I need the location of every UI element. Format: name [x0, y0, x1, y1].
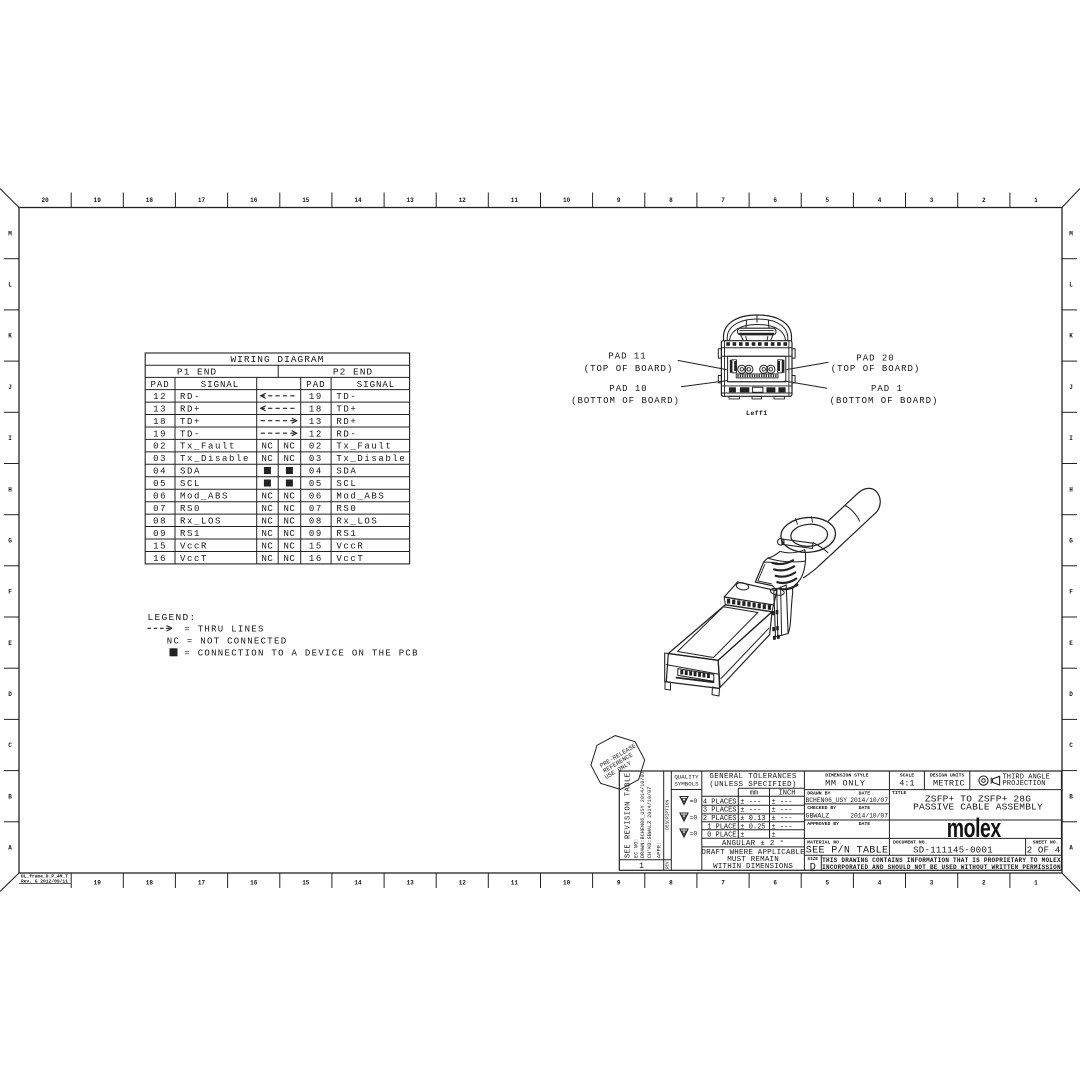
svg-text:7: 7 — [721, 880, 725, 887]
svg-text:I: I — [1069, 435, 1073, 442]
svg-text:12: 12 — [309, 429, 323, 439]
svg-text:8: 8 — [669, 197, 673, 204]
svg-text:B: B — [1069, 793, 1073, 800]
svg-text:± ---: ± --- — [772, 807, 793, 815]
svg-text:± ---: ± --- — [772, 815, 793, 823]
svg-text:M: M — [1069, 230, 1073, 237]
svg-text:APPROVED BY: APPROVED BY — [807, 821, 839, 827]
svg-text:06: 06 — [309, 492, 323, 502]
svg-text:E: E — [1069, 640, 1073, 647]
svg-text:± ---: ± --- — [740, 798, 761, 806]
svg-text:3: 3 — [930, 880, 934, 887]
svg-text:09: 09 — [153, 529, 167, 539]
svg-text:NC: NC — [261, 554, 273, 564]
svg-text:2014/10/07: 2014/10/07 — [850, 813, 888, 820]
svg-text:VccR: VccR — [180, 541, 208, 551]
svg-text:DOCUMENT NO.: DOCUMENT NO. — [893, 839, 928, 845]
svg-text:Rx_LOS: Rx_LOS — [180, 516, 222, 526]
svg-text:Tx_Disable: Tx_Disable — [336, 454, 406, 464]
svg-text:E: E — [8, 640, 12, 647]
svg-text:SEE P/N TABLE: SEE P/N TABLE — [806, 845, 889, 857]
svg-text:J: J — [8, 384, 12, 391]
svg-text:SCL: SCL — [336, 479, 357, 489]
svg-text:16: 16 — [250, 197, 258, 204]
svg-text:G: G — [8, 538, 12, 545]
svg-text:13: 13 — [406, 880, 414, 887]
svg-text:DRAWN:BCHEN06_USY 2014/10/07: DRAWN:BCHEN06_USY 2014/10/07 — [640, 771, 646, 858]
svg-text:RD-: RD- — [336, 429, 357, 439]
svg-text:Tx_Fault: Tx_Fault — [180, 442, 236, 452]
svg-text:1 PLACE: 1 PLACE — [707, 823, 736, 831]
svg-text:PAD 1: PAD 1 — [871, 384, 903, 394]
svg-text:(BOTTOM OF BOARD): (BOTTOM OF BOARD) — [571, 396, 680, 406]
svg-text:02: 02 — [153, 442, 167, 452]
svg-text:= CONNECTION TO A DEVICE ON TH: = CONNECTION TO A DEVICE ON THE PCB — [184, 649, 419, 659]
svg-text:NC: NC — [261, 504, 273, 514]
svg-text:11: 11 — [511, 197, 519, 204]
svg-text:10: 10 — [563, 197, 571, 204]
svg-text:A: A — [8, 845, 12, 852]
svg-text:REV: REV — [667, 861, 671, 869]
svg-text:16: 16 — [250, 880, 258, 887]
svg-text:WITHIN DIMENSIONS: WITHIN DIMENSIONS — [713, 863, 793, 871]
svg-text:INCORPORATED AND SHOULD NOT BE: INCORPORATED AND SHOULD NOT BE USED WITH… — [822, 864, 1061, 871]
svg-text:METRIC: METRIC — [933, 778, 965, 788]
svg-text:Mod_ABS: Mod_ABS — [180, 492, 229, 502]
svg-text:07: 07 — [153, 504, 167, 514]
svg-text:DATE: DATE — [859, 805, 871, 811]
svg-text:(BOTTOM OF BOARD): (BOTTOM OF BOARD) — [830, 396, 939, 406]
svg-text:4: 4 — [878, 880, 882, 887]
svg-text:D: D — [1069, 691, 1073, 698]
svg-text:mm: mm — [750, 790, 758, 798]
svg-text:1: 1 — [1034, 880, 1038, 887]
svg-text:K: K — [1069, 333, 1073, 340]
svg-text:05: 05 — [309, 479, 323, 489]
svg-text:CHECKED BY: CHECKED BY — [807, 805, 836, 811]
svg-text:19: 19 — [94, 880, 102, 887]
svg-text:NC: NC — [283, 442, 295, 452]
svg-text:NC: NC — [283, 454, 295, 464]
svg-text:LEGEND:: LEGEND: — [148, 612, 197, 623]
svg-text:SCL: SCL — [180, 479, 201, 489]
svg-text:Rx_LOS: Rx_LOS — [336, 516, 378, 526]
svg-text:SIGNAL: SIGNAL — [201, 380, 239, 390]
svg-text:17: 17 — [198, 880, 206, 887]
svg-text:P1 END: P1 END — [177, 366, 217, 377]
svg-text:SD-111145-0001: SD-111145-0001 — [913, 846, 993, 856]
svg-text:7: 7 — [721, 197, 725, 204]
svg-text:6: 6 — [773, 880, 777, 887]
svg-text:2 PLACES: 2 PLACES — [703, 815, 737, 823]
svg-text:±: ± — [740, 832, 744, 840]
svg-text:K: K — [8, 333, 12, 340]
svg-text:3: 3 — [930, 197, 934, 204]
svg-text:DATE: DATE — [859, 821, 871, 827]
svg-text:± 0.25: ± 0.25 — [740, 823, 765, 831]
svg-text:M: M — [8, 230, 12, 237]
svg-text:L: L — [1069, 282, 1073, 289]
svg-text:NC: NC — [283, 492, 295, 502]
svg-text:PASSIVE CABLE ASSEMBLY: PASSIVE CABLE ASSEMBLY — [913, 802, 1043, 813]
svg-text:9: 9 — [617, 880, 621, 887]
svg-text:PAD: PAD — [306, 380, 325, 390]
svg-text:± ---: ± --- — [772, 823, 793, 831]
svg-text:ANGULAR ± 2 °: ANGULAR ± 2 ° — [722, 839, 784, 848]
svg-text:14: 14 — [354, 197, 362, 204]
svg-text:03: 03 — [153, 454, 167, 464]
svg-text:19: 19 — [94, 197, 102, 204]
svg-text:TD+: TD+ — [336, 404, 357, 414]
svg-text:08: 08 — [309, 516, 323, 526]
svg-text:10: 10 — [563, 880, 571, 887]
svg-text:VccT: VccT — [336, 554, 364, 564]
svg-text:(TOP OF BOARD): (TOP OF BOARD) — [584, 364, 674, 374]
svg-text:RS1: RS1 — [336, 529, 357, 539]
svg-text:NC: NC — [261, 454, 273, 464]
svg-text:NC: NC — [283, 516, 295, 526]
svg-text:DATE: DATE — [859, 790, 871, 796]
svg-text:PROJECTION: PROJECTION — [1003, 780, 1046, 788]
svg-text:NC: NC — [283, 541, 295, 551]
svg-text:NC: NC — [261, 492, 273, 502]
svg-text:B: B — [8, 793, 12, 800]
svg-text:D: D — [8, 691, 12, 698]
svg-text:H: H — [1069, 486, 1073, 493]
svg-text:1: 1 — [1034, 197, 1038, 204]
svg-text:13: 13 — [406, 197, 414, 204]
svg-text:09: 09 — [309, 529, 323, 539]
svg-text:GBWALZ: GBWALZ — [806, 813, 830, 820]
svg-text:17: 17 — [198, 197, 206, 204]
svg-text:± 0.13: ± 0.13 — [740, 815, 765, 823]
svg-text:NC: NC — [261, 541, 273, 551]
svg-text:Leff1: Leff1 — [746, 410, 768, 417]
svg-text:4 PLACES: 4 PLACES — [703, 798, 737, 806]
svg-text:TITLE: TITLE — [892, 790, 907, 796]
svg-text:2 OF 4: 2 OF 4 — [1027, 846, 1061, 856]
svg-text:07: 07 — [309, 504, 323, 514]
svg-text:RS0: RS0 — [336, 504, 357, 514]
svg-text:15: 15 — [153, 541, 167, 551]
svg-text:13: 13 — [153, 404, 167, 414]
svg-text:MM ONLY: MM ONLY — [825, 778, 866, 788]
svg-text:18: 18 — [146, 880, 154, 887]
svg-text:19: 19 — [309, 392, 323, 402]
svg-text:SIGNAL: SIGNAL — [357, 380, 395, 390]
svg-text:Mod_ABS: Mod_ABS — [336, 492, 385, 502]
svg-text:C: C — [1069, 742, 1073, 749]
svg-text:Tx_Disable: Tx_Disable — [180, 454, 250, 464]
svg-text:08: 08 — [153, 516, 167, 526]
svg-text:INCH: INCH — [779, 790, 796, 798]
svg-text:9: 9 — [617, 197, 621, 204]
svg-text:P2 END: P2 END — [333, 366, 373, 377]
svg-text:± ---: ± --- — [772, 798, 793, 806]
svg-text:DESCRIPTION: DESCRIPTION — [665, 799, 671, 830]
svg-text:NC: NC — [283, 554, 295, 564]
svg-text:03: 03 — [309, 454, 323, 464]
svg-text:RS1: RS1 — [180, 529, 201, 539]
svg-text:EC NO:: EC NO: — [633, 838, 639, 858]
svg-text:18: 18 — [309, 404, 323, 414]
svg-text:04: 04 — [309, 467, 323, 477]
svg-text:12: 12 — [459, 197, 467, 204]
svg-text:L: L — [8, 282, 12, 289]
svg-text:13: 13 — [309, 417, 323, 427]
svg-text:6: 6 — [773, 197, 777, 204]
svg-text:RS0: RS0 — [180, 504, 201, 514]
svg-text:12: 12 — [459, 880, 467, 887]
svg-text:NC: NC — [283, 504, 295, 514]
svg-text:MATERIAL NO.: MATERIAL NO. — [807, 839, 842, 845]
svg-text:RD+: RD+ — [180, 404, 201, 414]
svg-text:04: 04 — [153, 467, 167, 477]
svg-text:PAD 20: PAD 20 — [856, 353, 894, 363]
svg-text:WIRING DIAGRAM: WIRING DIAGRAM — [230, 354, 324, 365]
svg-text:06: 06 — [153, 492, 167, 502]
svg-text:G: G — [1069, 538, 1073, 545]
svg-text:=0: =0 — [690, 815, 698, 822]
svg-text:A: A — [1069, 845, 1073, 852]
svg-text:NC: NC — [261, 529, 273, 539]
svg-text:NC: NC — [261, 516, 273, 526]
svg-text:= THRU LINES: = THRU LINES — [184, 624, 264, 634]
svg-text:TD-: TD- — [336, 392, 357, 402]
svg-text:DRAWN BY: DRAWN BY — [807, 790, 830, 796]
svg-text:I: I — [8, 435, 12, 442]
svg-text:PAD 10: PAD 10 — [609, 384, 647, 394]
svg-text:QUALITY: QUALITY — [674, 774, 699, 781]
svg-text:TD-: TD- — [180, 429, 201, 439]
svg-text:RD+: RD+ — [336, 417, 357, 427]
svg-text:19: 19 — [153, 429, 167, 439]
svg-text:F: F — [1069, 589, 1073, 596]
svg-text:(TOP OF BOARD): (TOP OF BOARD) — [831, 364, 921, 374]
svg-text:20: 20 — [41, 197, 49, 204]
svg-text:H: H — [8, 486, 12, 493]
svg-text:11: 11 — [511, 880, 519, 887]
svg-text:VccT: VccT — [180, 554, 208, 564]
svg-text:CH'KD:GBWALZ 2014/10/07: CH'KD:GBWALZ 2014/10/07 — [647, 787, 653, 858]
svg-text:THIS DRAWING CONTAINS INFORMAT: THIS DRAWING CONTAINS INFORMATION THAT I… — [822, 857, 1061, 864]
svg-text:0 PLACE: 0 PLACE — [707, 832, 736, 840]
svg-text:VccR: VccR — [336, 541, 364, 551]
svg-text:1: 1 — [639, 862, 644, 871]
svg-text:D: D — [810, 861, 816, 873]
svg-text:2: 2 — [982, 197, 986, 204]
svg-text:16: 16 — [153, 554, 167, 564]
svg-text:RD-: RD- — [180, 392, 201, 402]
svg-text:F: F — [8, 589, 12, 596]
svg-text:18: 18 — [153, 417, 167, 427]
svg-text:SDA: SDA — [336, 467, 357, 477]
svg-text:=0: =0 — [690, 831, 698, 838]
svg-text:J: J — [1069, 384, 1073, 391]
svg-text:=0: =0 — [690, 798, 698, 805]
svg-text:NC = NOT CONNECTED: NC = NOT CONNECTED — [167, 636, 288, 646]
svg-text:15: 15 — [302, 197, 310, 204]
svg-text:8: 8 — [669, 880, 673, 887]
svg-text:PAD: PAD — [150, 380, 169, 390]
svg-text:15: 15 — [309, 541, 323, 551]
svg-text:18: 18 — [146, 197, 154, 204]
svg-text:14: 14 — [354, 880, 362, 887]
svg-text:2: 2 — [982, 880, 986, 887]
svg-text:SHEET NO.: SHEET NO. — [1033, 839, 1059, 845]
svg-text:TD+: TD+ — [180, 417, 201, 427]
svg-text:PAD 11: PAD 11 — [608, 351, 646, 361]
svg-text:SDA: SDA — [180, 467, 201, 477]
svg-text:BCHEN06_USY: BCHEN06_USY — [806, 797, 848, 804]
svg-text:3 PLACES: 3 PLACES — [703, 807, 737, 815]
svg-text:2014/10/07: 2014/10/07 — [850, 797, 888, 804]
svg-text:4:1: 4:1 — [899, 778, 914, 788]
svg-text:SYMBOLS: SYMBOLS — [674, 781, 699, 788]
svg-text:Tx_Fault: Tx_Fault — [336, 442, 392, 452]
svg-text:5: 5 — [825, 880, 829, 887]
svg-text:NC: NC — [283, 529, 295, 539]
svg-text:GENERAL TOLERANCES: GENERAL TOLERANCES — [709, 773, 796, 781]
svg-text:02: 02 — [309, 442, 323, 452]
svg-text:12: 12 — [153, 392, 167, 402]
svg-text:APPR:: APPR: — [656, 841, 662, 858]
svg-text:4: 4 — [878, 197, 882, 204]
svg-text:±: ± — [772, 832, 776, 840]
svg-text:15: 15 — [302, 880, 310, 887]
svg-text:C: C — [8, 742, 12, 749]
svg-text:05: 05 — [153, 479, 167, 489]
svg-text:16: 16 — [309, 554, 323, 564]
svg-text:molex: molex — [947, 813, 1001, 843]
svg-text:NC: NC — [261, 442, 273, 452]
svg-text:5: 5 — [825, 197, 829, 204]
svg-text:± ---: ± --- — [740, 807, 761, 815]
